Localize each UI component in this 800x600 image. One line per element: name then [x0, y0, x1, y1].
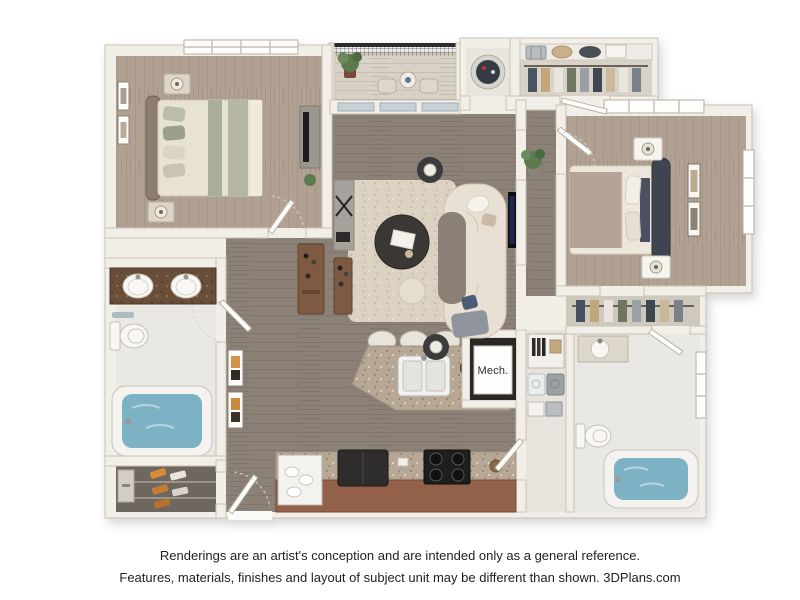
sofa [438, 184, 506, 338]
side-table-lamp-top [417, 157, 443, 183]
lamp-1a-center [175, 82, 179, 86]
sofa-throw [451, 310, 490, 339]
candle [405, 250, 413, 258]
balcony-chair-right [420, 79, 438, 93]
balcony-chair-left [378, 79, 396, 93]
balcony-table-cup [405, 77, 411, 83]
mech-closet: Mech. [462, 330, 516, 408]
tv-wall-mounted [508, 192, 516, 248]
towel-bar [112, 312, 134, 318]
basket-tan [552, 46, 572, 58]
dish-cabinet [278, 455, 322, 505]
sliding-glass-door [330, 100, 460, 114]
floor-plan-page: Mech. [0, 0, 800, 600]
bed-2-runner [640, 178, 650, 242]
bedroom-1-plant [304, 174, 316, 186]
water-heater-valve [482, 66, 486, 70]
bed-2-pillow-1 [625, 175, 641, 204]
mech-label: Mech. [478, 365, 509, 377]
storage-bin [606, 45, 626, 58]
lamp-1b-center [159, 210, 163, 214]
lamp-2a-center [646, 147, 650, 151]
water-heater-closet [471, 55, 505, 89]
hallway-planks [526, 110, 556, 296]
kitchen [276, 450, 516, 512]
hanging-clothes [528, 68, 641, 92]
entry-opening [228, 511, 272, 520]
lamp-2b-center [654, 265, 658, 269]
island-sink [398, 355, 450, 396]
bathtub-2 [604, 450, 698, 508]
toilet-1 [110, 322, 148, 350]
bed-1-stripe-1 [208, 100, 222, 196]
bed-2-pillow-2 [625, 212, 641, 241]
stove [424, 450, 470, 484]
counter-items [398, 458, 408, 466]
bed-2-blanket [570, 172, 622, 248]
disclaimer-line-2: Features, materials, finishes and layout… [0, 567, 800, 589]
bedroom-2-closet [572, 300, 694, 322]
dryer [547, 374, 564, 395]
hallway-console [298, 244, 324, 314]
toilet-2 [576, 424, 611, 448]
water-heater-top [476, 60, 500, 84]
closet-cabinet-handle [122, 484, 130, 487]
balcony-railing-bar [333, 43, 457, 47]
bed-2-headboard [652, 158, 670, 262]
ottoman [399, 278, 425, 304]
side-table-lamp-bottom [423, 334, 449, 360]
bedroom-2-window-right [743, 150, 754, 234]
bed-1-sheet-fold [250, 100, 262, 196]
bathtub-1 [112, 386, 212, 456]
floor-plan-rendering: Mech. [0, 0, 800, 540]
sink-1a-faucet [136, 275, 141, 280]
utility-shelf [528, 334, 564, 368]
bed-1-stripe-2 [228, 100, 248, 196]
sink-2-faucet [598, 339, 603, 344]
water-heater-cap [491, 70, 495, 74]
bedroom-1-tv [303, 112, 309, 162]
storage-box-2 [546, 402, 562, 416]
media-console [334, 180, 354, 250]
disclaimer-line-1: Renderings are an artist's conception an… [0, 545, 800, 567]
washer [528, 374, 545, 395]
disclaimer: Renderings are an artist's conception an… [0, 545, 800, 589]
storage-box-1 [528, 402, 544, 416]
balcony [329, 43, 461, 102]
sink-1b-faucet [184, 275, 189, 280]
basket-dark [579, 46, 601, 58]
bar-cart [334, 258, 352, 314]
bathroom-2-window [696, 352, 706, 418]
suitcase [526, 46, 546, 59]
